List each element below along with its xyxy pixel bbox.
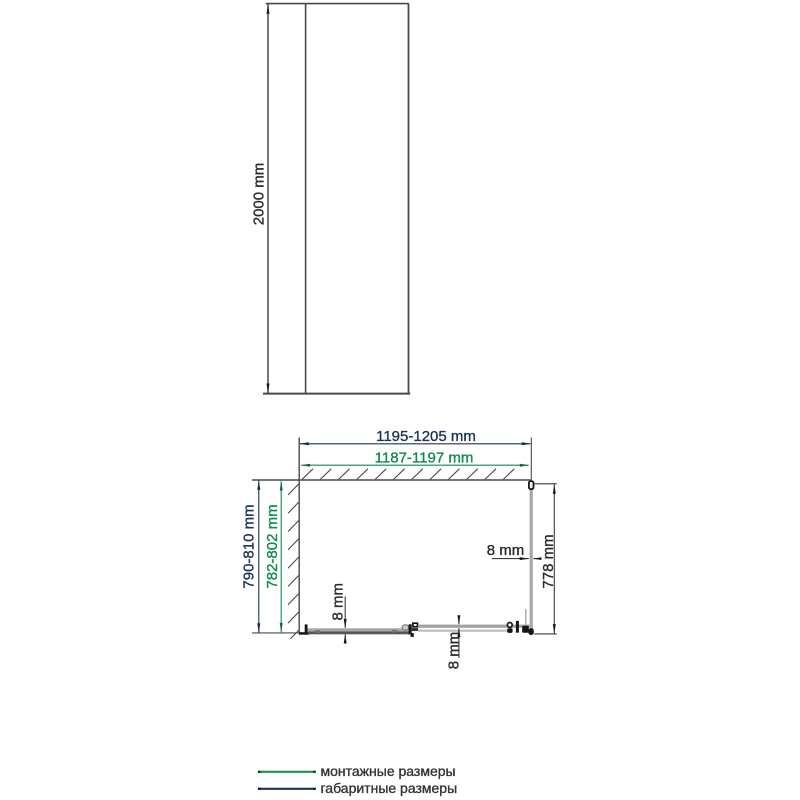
svg-text:1187-1197 mm: 1187-1197 mm xyxy=(375,449,474,466)
svg-text:1195-1205 mm: 1195-1205 mm xyxy=(376,428,476,445)
svg-text:габаритные размеры: габаритные размеры xyxy=(321,780,458,796)
svg-text:2000 mm: 2000 mm xyxy=(251,163,268,226)
svg-text:790-810 mm: 790-810 mm xyxy=(241,504,258,588)
svg-text:782-802 mm: 782-802 mm xyxy=(264,504,281,588)
svg-text:8 mm: 8 mm xyxy=(330,583,347,621)
svg-text:778 mm: 778 mm xyxy=(540,534,557,588)
svg-text:8 mm: 8 mm xyxy=(487,542,525,559)
svg-text:монтажные размеры: монтажные размеры xyxy=(321,763,456,779)
svg-text:8 mm: 8 mm xyxy=(446,632,463,670)
